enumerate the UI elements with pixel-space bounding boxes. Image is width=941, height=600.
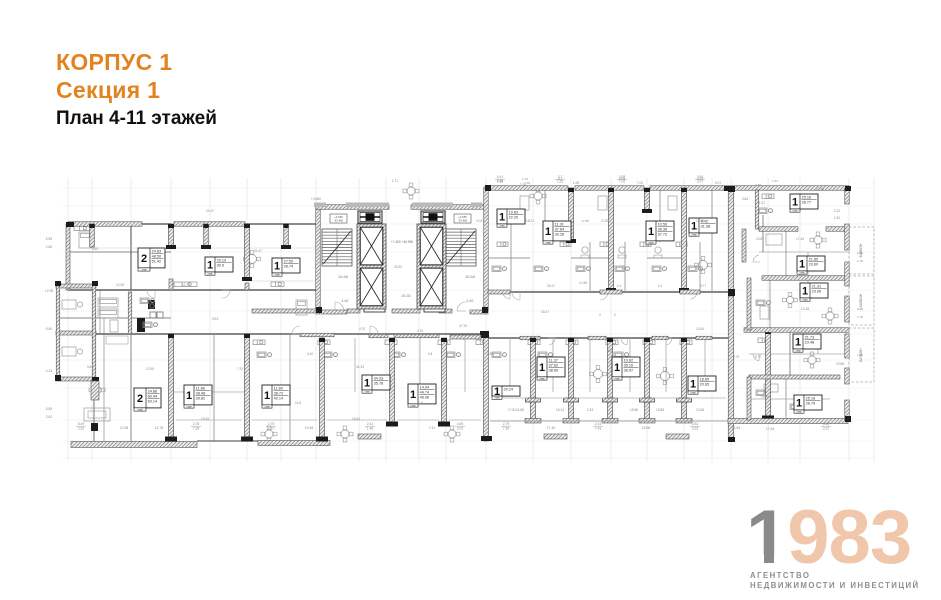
svg-text:11.31: 11.31	[555, 222, 564, 226]
svg-text:44.74: 44.74	[420, 390, 430, 394]
svg-text:15.88: 15.88	[656, 408, 664, 412]
svg-text:1.65: 1.65	[573, 181, 580, 185]
svg-text:5.89: 5.89	[46, 237, 53, 241]
svg-text:28.74: 28.74	[284, 265, 294, 269]
svg-text:38.60: 38.60	[549, 369, 559, 373]
svg-text:7.41: 7.41	[429, 426, 436, 430]
svg-text:1: 1	[690, 378, 696, 390]
svg-text:12.08: 12.08	[45, 289, 53, 293]
svg-text:1.81: 1.81	[834, 216, 841, 220]
svg-text:7.33: 7.33	[237, 367, 243, 371]
svg-text:17.81: 17.81	[508, 408, 516, 412]
svg-text:этаж: этаж	[499, 225, 505, 228]
svg-text:40.14: 40.14	[274, 397, 284, 401]
svg-text:17.45: 17.45	[816, 187, 824, 191]
svg-text:2: 2	[141, 253, 147, 265]
svg-text:1: 1	[799, 258, 805, 270]
svg-text:13.48: 13.48	[801, 307, 809, 311]
svg-text:33.47: 33.47	[547, 284, 555, 288]
svg-text:63.14: 63.14	[148, 400, 158, 404]
svg-text:2.22: 2.22	[834, 209, 841, 213]
svg-text:этаж: этаж	[690, 392, 696, 395]
svg-text:23.60: 23.60	[809, 263, 819, 267]
svg-text:39.82: 39.82	[196, 397, 206, 401]
svg-text:1: 1	[186, 390, 192, 402]
svg-text:4.62: 4.62	[467, 299, 474, 303]
svg-text:19.45: 19.45	[201, 417, 209, 421]
svg-text:этаж: этаж	[691, 234, 697, 237]
svg-text:30.5: 30.5	[217, 264, 224, 268]
svg-text:26.79: 26.79	[806, 402, 816, 406]
svg-text:0.88: 0.88	[857, 251, 863, 255]
svg-text:4.45: 4.45	[457, 422, 464, 426]
svg-text:БАЛКОН: БАЛКОН	[859, 293, 863, 307]
svg-text:25.35: 25.35	[394, 265, 402, 269]
svg-text:12.78: 12.78	[155, 426, 164, 430]
svg-text:17.64: 17.64	[766, 427, 775, 431]
svg-text:11.8: 11.8	[417, 401, 423, 405]
svg-text:21.85: 21.85	[809, 257, 819, 261]
svg-text:26.77: 26.77	[802, 201, 812, 205]
svg-text:этаж: этаж	[614, 378, 620, 381]
svg-text:3.84: 3.84	[87, 365, 93, 369]
svg-text:3.94: 3.94	[212, 317, 218, 321]
svg-text:1: 1	[539, 362, 545, 374]
svg-text:16.08: 16.08	[696, 219, 704, 223]
svg-text:4.85: 4.85	[487, 352, 493, 356]
svg-text:7.02: 7.02	[619, 180, 626, 184]
svg-text:4.4: 4.4	[608, 349, 613, 353]
svg-text:21.31: 21.31	[812, 284, 822, 288]
svg-text:3.22: 3.22	[823, 427, 830, 431]
svg-text:2.62: 2.62	[46, 415, 53, 419]
svg-text:2: 2	[599, 313, 601, 317]
svg-text:7.02: 7.02	[637, 181, 644, 185]
svg-text:3.8: 3.8	[428, 352, 433, 356]
svg-text:4.4: 4.4	[658, 284, 663, 288]
svg-text:13.68: 13.68	[696, 408, 704, 412]
svg-text:29.19: 29.19	[217, 258, 227, 262]
svg-text:этаж: этаж	[539, 378, 545, 381]
svg-text:11.88: 11.88	[516, 408, 524, 412]
svg-text:3.23: 3.23	[692, 427, 699, 431]
svg-text:27.55: 27.55	[284, 259, 294, 263]
svg-text:3.7: 3.7	[558, 175, 563, 179]
svg-text:18.45: 18.45	[352, 417, 360, 421]
svg-text:этаж: этаж	[137, 409, 143, 412]
svg-text:2.41: 2.41	[595, 422, 602, 426]
svg-text:21.47: 21.47	[206, 209, 214, 213]
svg-text:3.94: 3.94	[697, 175, 704, 179]
svg-text:4.40: 4.40	[307, 352, 313, 356]
svg-text:2.79: 2.79	[503, 422, 510, 426]
svg-text:10.87: 10.87	[756, 237, 764, 241]
svg-text:5.89: 5.89	[46, 407, 53, 411]
svg-text:34.33: 34.33	[374, 376, 384, 380]
svg-text:17.88: 17.88	[601, 219, 609, 223]
svg-text:33.47: 33.47	[541, 310, 549, 314]
svg-text:1: 1	[795, 336, 801, 348]
svg-text:12.64: 12.64	[732, 426, 741, 430]
svg-text:этаж: этаж	[799, 272, 805, 275]
svg-text:7.39: 7.39	[503, 427, 510, 431]
svg-text:38.48: 38.48	[196, 391, 206, 395]
svg-text:-33.460: -33.460	[334, 219, 344, 223]
svg-text:11.80: 11.80	[274, 386, 283, 390]
svg-text:этаж: этаж	[410, 405, 416, 408]
svg-text:14.04: 14.04	[420, 385, 430, 389]
svg-text:1: 1	[792, 196, 798, 208]
svg-text:35.16: 35.16	[624, 363, 634, 367]
svg-text:39.28: 39.28	[555, 233, 565, 237]
svg-text:+3.650: +3.650	[311, 197, 321, 201]
svg-text:34.33: 34.33	[356, 365, 364, 369]
svg-text:25.16: 25.16	[802, 195, 812, 199]
svg-text:25.18: 25.18	[806, 396, 816, 400]
svg-text:этаж: этаж	[364, 391, 370, 394]
svg-text:3.07: 3.07	[715, 181, 722, 185]
svg-text:7.43: 7.43	[595, 427, 602, 431]
svg-text:3.84: 3.84	[742, 197, 749, 201]
svg-text:3.84: 3.84	[755, 183, 761, 187]
svg-text:18.21: 18.21	[526, 219, 534, 223]
svg-text:1: 1	[614, 362, 620, 374]
svg-text:+7.480 +48.980: +7.480 +48.980	[391, 240, 414, 244]
svg-text:17.45: 17.45	[547, 426, 556, 430]
svg-text:8.77: 8.77	[755, 355, 761, 359]
svg-text:1.67: 1.67	[772, 179, 778, 183]
svg-text:8.85: 8.85	[92, 247, 98, 251]
svg-text:2.43: 2.43	[587, 408, 593, 412]
svg-text:1: 1	[207, 259, 213, 271]
svg-text:37.64: 37.64	[555, 227, 565, 231]
svg-text:7.39: 7.39	[524, 181, 530, 185]
svg-text:19.88: 19.88	[836, 362, 844, 366]
svg-text:4.4: 4.4	[617, 284, 622, 288]
svg-text:0.88: 0.88	[857, 307, 863, 311]
svg-text:этаж: этаж	[545, 242, 551, 245]
svg-text:19.65: 19.65	[305, 426, 314, 430]
svg-text:3.22: 3.22	[457, 427, 464, 431]
svg-text:1: 1	[796, 397, 802, 409]
svg-text:19.88: 19.88	[761, 395, 769, 399]
svg-text:17.45: 17.45	[796, 237, 804, 241]
svg-text:1.48: 1.48	[367, 427, 374, 431]
svg-text:1.78: 1.78	[857, 315, 863, 319]
svg-text:11.8: 11.8	[295, 401, 301, 405]
svg-text:2.62: 2.62	[78, 427, 85, 431]
svg-text:60.44: 60.44	[148, 394, 158, 398]
svg-text:4.70: 4.70	[417, 329, 423, 333]
svg-text:1: 1	[648, 226, 654, 238]
svg-text:16.66: 16.66	[465, 274, 476, 279]
svg-text:2.75: 2.75	[268, 422, 275, 426]
svg-text:48.50: 48.50	[152, 254, 162, 258]
svg-text:20.65: 20.65	[700, 383, 710, 387]
svg-text:19.83: 19.83	[509, 210, 519, 214]
svg-text:8.60: 8.60	[46, 327, 53, 331]
svg-text:этаж: этаж	[792, 210, 798, 213]
svg-text:31.38: 31.38	[701, 225, 711, 229]
svg-text:2.78: 2.78	[193, 422, 200, 426]
svg-text:4.70: 4.70	[359, 327, 365, 331]
svg-text:2: 2	[614, 313, 616, 317]
svg-text:12.08: 12.08	[120, 426, 129, 430]
svg-text:11.86: 11.86	[196, 386, 205, 390]
svg-text:12.77: 12.77	[182, 283, 190, 287]
svg-text:47.19: 47.19	[459, 324, 467, 328]
svg-text:2.60: 2.60	[46, 245, 53, 249]
svg-text:22.20: 22.20	[509, 216, 519, 220]
svg-text:36.57: 36.57	[624, 369, 634, 373]
svg-text:23.06: 23.06	[812, 290, 822, 294]
svg-text:12.98: 12.98	[146, 367, 154, 371]
svg-text:17.88: 17.88	[579, 281, 587, 285]
svg-text:2.81: 2.81	[692, 422, 699, 426]
svg-text:этаж: этаж	[264, 406, 270, 409]
svg-text:1.67: 1.67	[759, 201, 766, 205]
svg-text:1.78: 1.78	[857, 259, 863, 263]
svg-text:2.41: 2.41	[367, 422, 374, 426]
svg-text:21.47: 21.47	[254, 249, 262, 253]
svg-text:2.36: 2.36	[497, 180, 504, 184]
svg-text:2: 2	[137, 393, 143, 405]
svg-text:4.15: 4.15	[46, 369, 53, 373]
svg-text:37.62: 37.62	[549, 363, 559, 367]
svg-text:12.08: 12.08	[116, 283, 124, 287]
svg-text:46.96: 46.96	[420, 396, 430, 400]
svg-text:5.49: 5.49	[78, 422, 85, 426]
svg-text:1: 1	[274, 260, 280, 272]
svg-text:-33.460: -33.460	[458, 219, 468, 223]
svg-text:3.77: 3.77	[700, 284, 706, 288]
svg-text:35.78: 35.78	[374, 382, 384, 386]
svg-text:17.88: 17.88	[581, 219, 589, 223]
svg-text:3.07: 3.07	[697, 180, 704, 184]
svg-text:этаж: этаж	[207, 273, 213, 276]
svg-text:36.36: 36.36	[658, 227, 668, 231]
svg-text:12.87: 12.87	[476, 219, 484, 223]
svg-text:1: 1	[264, 390, 270, 402]
svg-text:16.66: 16.66	[338, 274, 349, 279]
svg-text:4.45: 4.45	[823, 422, 830, 426]
svg-text:1.71: 1.71	[392, 179, 399, 183]
svg-text:24.86: 24.86	[148, 389, 158, 393]
svg-text:этаж: этаж	[186, 406, 192, 409]
svg-text:1: 1	[410, 389, 416, 401]
svg-text:21.73: 21.73	[805, 335, 815, 339]
svg-text:10.56: 10.56	[658, 222, 668, 226]
svg-text:7.37: 7.37	[268, 427, 275, 431]
svg-text:7.28: 7.28	[193, 427, 200, 431]
svg-text:26.35: 26.35	[402, 294, 411, 298]
svg-text:1: 1	[364, 377, 370, 389]
svg-text:1.78: 1.78	[857, 353, 863, 357]
svg-text:этаж: этаж	[274, 274, 280, 277]
svg-text:8.79: 8.79	[733, 355, 739, 359]
svg-text:4.62: 4.62	[342, 299, 349, 303]
svg-text:этаж: этаж	[648, 242, 654, 245]
svg-text:24.83: 24.83	[152, 249, 162, 253]
svg-text:этаж: этаж	[796, 411, 802, 414]
svg-text:18.14: 18.14	[556, 408, 564, 412]
svg-text:11.37: 11.37	[549, 358, 558, 362]
svg-text:10.62: 10.62	[624, 358, 634, 362]
svg-text:20.24: 20.24	[504, 387, 514, 391]
svg-text:этаж: этаж	[141, 269, 147, 272]
svg-text:23.48: 23.48	[805, 341, 815, 345]
svg-text:этаж: этаж	[802, 299, 808, 302]
svg-text:1: 1	[802, 285, 808, 297]
svg-text:38.72: 38.72	[274, 391, 284, 395]
svg-text:15.88: 15.88	[630, 408, 638, 412]
svg-text:1: 1	[499, 211, 505, 223]
svg-text:18.85: 18.85	[700, 377, 710, 381]
svg-text:12.64: 12.64	[696, 327, 704, 331]
svg-text:этаж: этаж	[795, 350, 801, 353]
svg-text:1: 1	[545, 226, 551, 238]
svg-text:51.42: 51.42	[152, 260, 162, 264]
svg-text:1.65: 1.65	[557, 180, 564, 184]
svg-text:3.08: 3.08	[619, 175, 626, 179]
svg-text:15.88: 15.88	[642, 426, 651, 430]
svg-text:37.72: 37.72	[658, 233, 668, 237]
svg-text:этаж: этаж	[494, 397, 500, 400]
svg-text:4.41: 4.41	[497, 175, 504, 179]
